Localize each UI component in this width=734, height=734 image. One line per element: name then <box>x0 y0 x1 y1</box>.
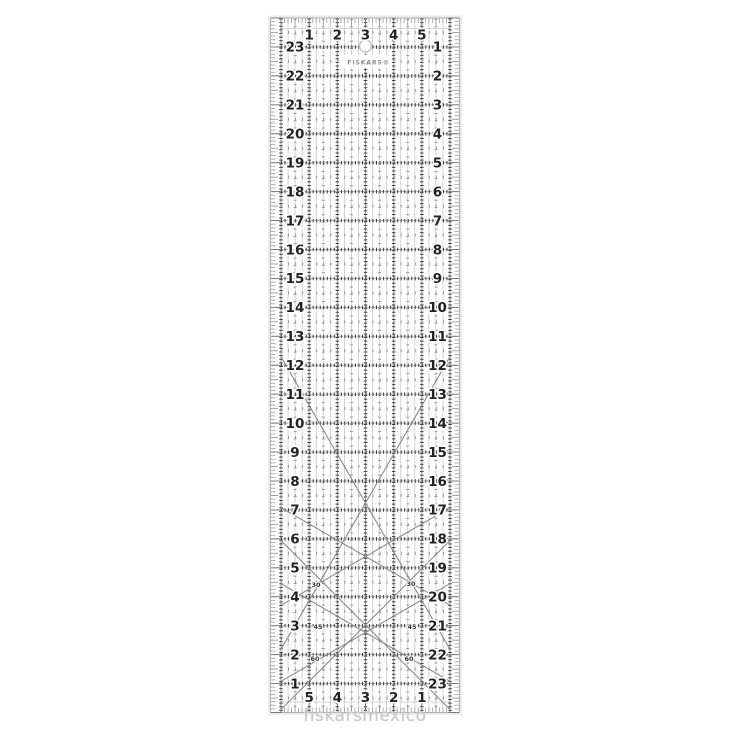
svg-text:12: 12 <box>428 358 447 374</box>
svg-text:5: 5 <box>433 155 442 171</box>
svg-text:17: 17 <box>428 503 447 519</box>
svg-text:11: 11 <box>286 387 305 403</box>
svg-text:1: 1 <box>417 690 426 706</box>
svg-text:1: 1 <box>304 28 313 44</box>
svg-text:4: 4 <box>333 690 342 706</box>
svg-text:7: 7 <box>433 213 442 229</box>
svg-text:45: 45 <box>313 623 323 631</box>
svg-text:4: 4 <box>290 590 299 606</box>
svg-text:8: 8 <box>290 474 299 490</box>
svg-text:1: 1 <box>290 676 299 692</box>
svg-text:3: 3 <box>361 690 370 706</box>
svg-text:30: 30 <box>311 581 321 589</box>
svg-text:22: 22 <box>286 69 305 85</box>
svg-text:23: 23 <box>286 40 305 56</box>
svg-text:19: 19 <box>428 561 447 577</box>
svg-text:3: 3 <box>290 618 299 634</box>
svg-text:9: 9 <box>433 271 442 287</box>
svg-text:2: 2 <box>389 690 398 706</box>
svg-text:15: 15 <box>286 271 305 287</box>
svg-text:15: 15 <box>428 445 447 461</box>
svg-text:5: 5 <box>304 690 313 706</box>
product-photo: 303045456060FISKARS®12345543212322212019… <box>0 0 734 734</box>
svg-text:60: 60 <box>404 655 414 663</box>
svg-text:5: 5 <box>290 561 299 577</box>
watermark-text: fiskarsmexico <box>303 706 426 726</box>
svg-text:1: 1 <box>433 40 442 56</box>
svg-text:5: 5 <box>417 28 426 44</box>
svg-text:30: 30 <box>406 580 416 588</box>
svg-text:18: 18 <box>428 532 447 548</box>
svg-text:14: 14 <box>286 300 305 316</box>
svg-text:3: 3 <box>433 98 442 114</box>
svg-text:2: 2 <box>333 28 342 44</box>
svg-text:20: 20 <box>428 590 447 606</box>
svg-text:FISKARS®: FISKARS® <box>347 59 389 67</box>
svg-text:23: 23 <box>428 676 447 692</box>
svg-text:21: 21 <box>286 98 305 114</box>
svg-text:7: 7 <box>290 503 299 519</box>
svg-text:6: 6 <box>290 532 299 548</box>
svg-text:11: 11 <box>428 329 447 345</box>
svg-text:4: 4 <box>389 28 398 44</box>
svg-text:9: 9 <box>290 445 299 461</box>
svg-text:45: 45 <box>407 623 417 631</box>
svg-text:18: 18 <box>286 184 305 200</box>
svg-text:10: 10 <box>428 300 447 316</box>
svg-text:8: 8 <box>433 242 442 258</box>
svg-text:12: 12 <box>286 358 305 374</box>
svg-text:20: 20 <box>286 127 305 143</box>
svg-text:13: 13 <box>286 329 305 345</box>
svg-text:6: 6 <box>433 184 442 200</box>
svg-text:17: 17 <box>286 213 305 229</box>
svg-text:19: 19 <box>286 155 305 171</box>
svg-text:4: 4 <box>433 127 442 143</box>
svg-text:2: 2 <box>433 69 442 85</box>
svg-text:10: 10 <box>286 416 305 432</box>
svg-text:13: 13 <box>428 387 447 403</box>
svg-text:16: 16 <box>286 242 305 258</box>
brand-logo: FISKARS® <box>343 55 390 68</box>
svg-text:3: 3 <box>361 28 370 44</box>
svg-text:2: 2 <box>290 647 299 663</box>
svg-text:14: 14 <box>428 416 447 432</box>
svg-text:21: 21 <box>428 618 447 634</box>
quilting-ruler-graphic: 303045456060FISKARS®12345543212322212019… <box>0 0 734 734</box>
svg-text:60: 60 <box>310 655 320 663</box>
svg-text:22: 22 <box>428 647 447 663</box>
svg-text:16: 16 <box>428 474 447 490</box>
